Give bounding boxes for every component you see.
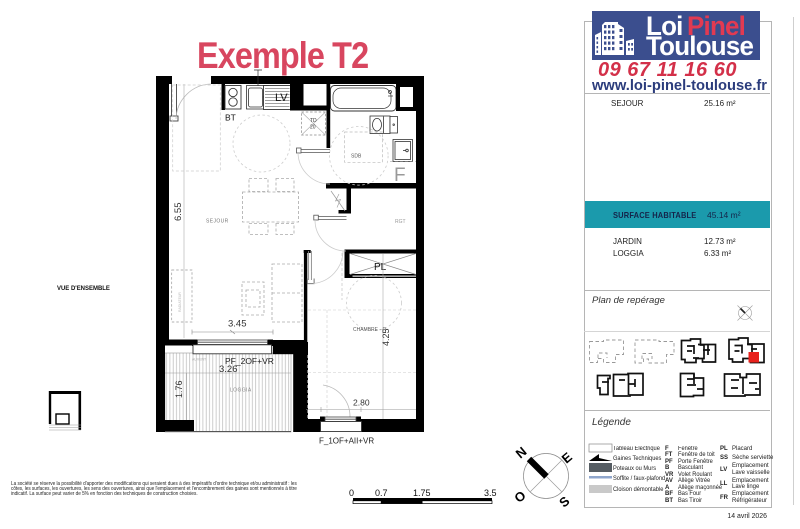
svg-text:LV: LV bbox=[275, 92, 288, 104]
svg-text:F: F bbox=[394, 165, 406, 186]
svg-text:RGT: RGT bbox=[395, 219, 406, 225]
svg-text:PL: PL bbox=[374, 262, 387, 273]
svg-text:4.25: 4.25 bbox=[381, 328, 391, 346]
svg-text:BT: BT bbox=[225, 113, 236, 123]
svg-text:TD: TD bbox=[310, 118, 317, 124]
svg-text:RADIATEUR: RADIATEUR bbox=[178, 292, 182, 312]
svg-text:O: O bbox=[511, 488, 528, 506]
svg-text:AUVENT: AUVENT bbox=[192, 358, 207, 362]
svg-text:SEJOUR: SEJOUR bbox=[206, 219, 229, 225]
svg-text:0: 0 bbox=[349, 488, 354, 498]
svg-text:LOGGIA: LOGGIA bbox=[230, 388, 252, 394]
svg-text:3.26: 3.26 bbox=[219, 364, 238, 375]
svg-text:E: E bbox=[559, 449, 576, 466]
svg-text:N: N bbox=[513, 444, 530, 462]
svg-text:SDB: SDB bbox=[351, 154, 362, 160]
svg-text:0.7: 0.7 bbox=[375, 488, 388, 498]
svg-text:F_1OF+AII+VR: F_1OF+AII+VR bbox=[319, 437, 374, 446]
svg-text:20: 20 bbox=[310, 125, 316, 131]
svg-text:3.5: 3.5 bbox=[484, 488, 497, 498]
svg-text:1.75: 1.75 bbox=[413, 488, 431, 498]
svg-text:S: S bbox=[556, 493, 573, 510]
svg-text:2.80: 2.80 bbox=[353, 398, 370, 408]
svg-text:1.76: 1.76 bbox=[174, 380, 184, 398]
svg-text:6.55: 6.55 bbox=[173, 203, 184, 222]
svg-text:3.45: 3.45 bbox=[228, 319, 247, 330]
